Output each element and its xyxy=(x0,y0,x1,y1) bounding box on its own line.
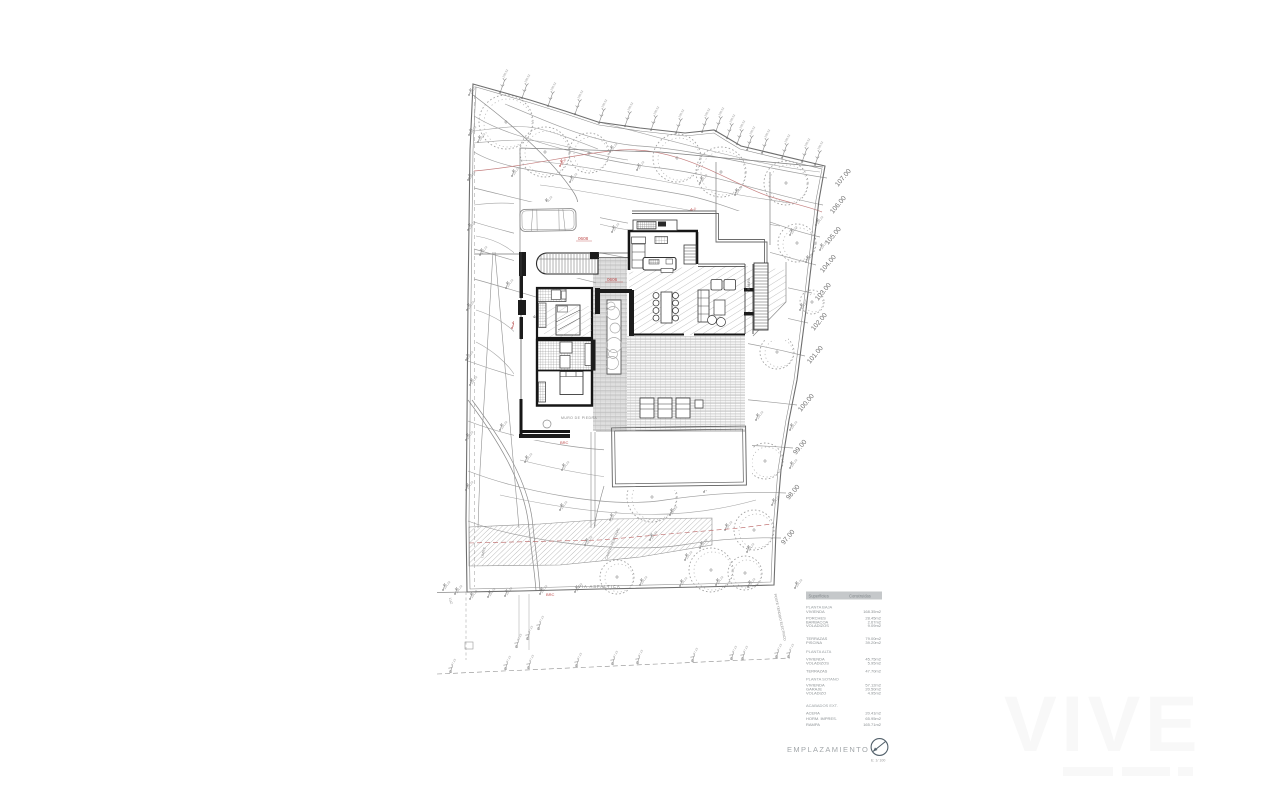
svg-text:VOLADIZOS: VOLADIZOS xyxy=(806,623,829,628)
svg-text:PLANTA SOTANO: PLANTA SOTANO xyxy=(806,676,839,681)
svg-text:9.09m2: 9.09m2 xyxy=(868,623,882,628)
svg-text:Construidas: Construidas xyxy=(849,593,871,598)
svg-text:5.95m2: 5.95m2 xyxy=(868,660,882,665)
svg-text:4.95m2: 4.95m2 xyxy=(868,691,882,696)
svg-text:PLANTA ALTA: PLANTA ALTA xyxy=(806,649,832,654)
svg-text:TERRAZAS: TERRAZAS xyxy=(806,669,828,674)
svg-text:ACERA: ACERA xyxy=(806,710,820,715)
svg-text:0608: 0608 xyxy=(578,236,589,241)
svg-text:Superficies: Superficies xyxy=(809,593,829,598)
svg-text:65.95m2: 65.95m2 xyxy=(865,716,881,721)
svg-text:47.70m2: 47.70m2 xyxy=(865,669,881,674)
svg-text:E: 1/ 100: E: 1/ 100 xyxy=(871,759,885,763)
svg-text:BRC: BRC xyxy=(560,440,569,445)
svg-text:0606: 0606 xyxy=(607,277,618,282)
svg-text:165.71m2: 165.71m2 xyxy=(863,722,882,727)
svg-text:VIVIENDA: VIVIENDA xyxy=(806,609,825,614)
svg-text:EMPLAZAMIENTO: EMPLAZAMIENTO xyxy=(787,745,869,754)
svg-text:HORM. IMPRES.: HORM. IMPRES. xyxy=(806,716,837,721)
svg-text:RAMPA: RAMPA xyxy=(747,277,751,290)
svg-text:BRC: BRC xyxy=(546,592,555,597)
svg-text:VOLADIZO: VOLADIZO xyxy=(806,691,826,696)
svg-text:VIVE: VIVE xyxy=(1004,679,1202,768)
svg-text:RAMPA: RAMPA xyxy=(806,722,820,727)
svg-text:168.35m2: 168.35m2 xyxy=(863,609,882,614)
svg-text:ACABADOS EXT.: ACABADOS EXT. xyxy=(806,703,838,708)
svg-text:VIA ASFALTICA: VIA ASFALTICA xyxy=(578,584,621,589)
svg-text:PISCINA: PISCINA xyxy=(806,640,822,645)
svg-text:VOLADIZOS: VOLADIZOS xyxy=(806,660,829,665)
svg-text:39.20m2: 39.20m2 xyxy=(865,640,881,645)
svg-text:MURO DE PIEDRA: MURO DE PIEDRA xyxy=(561,416,597,420)
svg-text:20.41m2: 20.41m2 xyxy=(865,710,881,715)
